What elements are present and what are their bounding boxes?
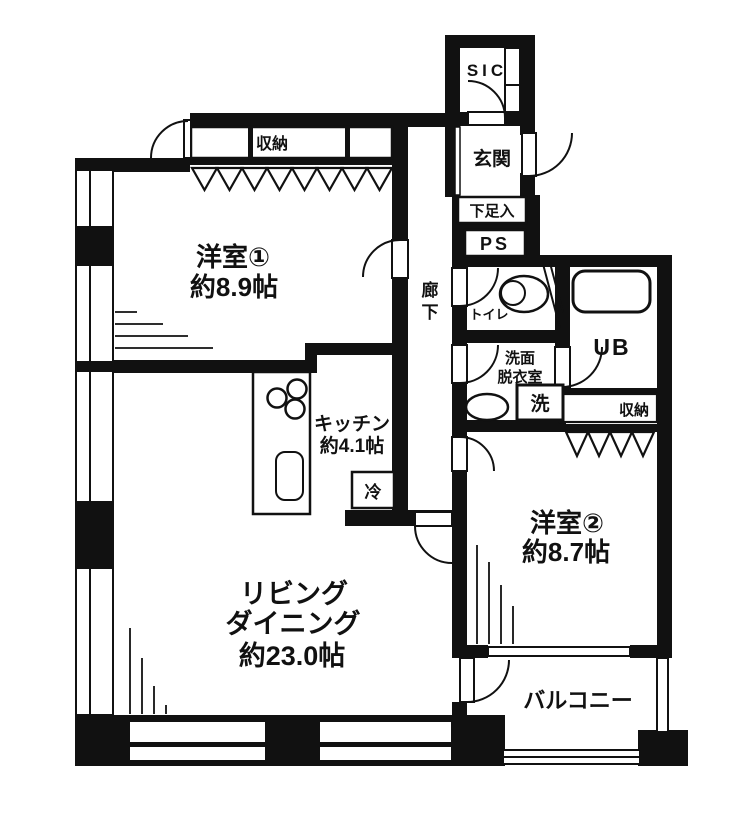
folding-door-icon (192, 168, 392, 190)
label-bedroom2-size: 約8.7帖 (522, 537, 610, 567)
door-sic (468, 81, 505, 125)
label-living-size: 約23.0帖 (239, 640, 346, 671)
label-kitchen-name: キッチン (314, 414, 390, 435)
label-refrigerator: 冷 (365, 482, 382, 502)
label-balcony: バルコニー (523, 688, 633, 713)
sic-shelf (505, 48, 520, 112)
toilet-icon (500, 263, 563, 328)
label-sic: SIC (467, 61, 507, 80)
kitchen-counter-icon (253, 372, 310, 514)
label-living-2: ダイニング (226, 608, 361, 639)
washbasin-icon (466, 394, 508, 420)
door-living (415, 512, 452, 563)
label-hallway-1: 廊 (422, 280, 439, 300)
label-shoe-cabinet: 下足入 (469, 203, 514, 220)
label-toilet: トイレ (469, 307, 508, 322)
floor-plan-drawing: SIC 玄関 下足入 PS トイレ UB 洗面 脱衣室 洗 収納 収納 廊 下 … (0, 0, 750, 825)
door-entrance (522, 133, 572, 176)
label-living-1: リビング (240, 578, 348, 609)
label-washroom-2: 脱衣室 (497, 368, 542, 386)
door-bedroom1 (363, 240, 408, 278)
label-bedroom1-size: 約8.9帖 (190, 272, 278, 302)
label-kitchen-size: 約4.1帖 (320, 434, 384, 457)
floor-plan-page: SIC 玄関 下足入 PS トイレ UB 洗面 脱衣室 洗 収納 収納 廊 下 … (0, 0, 750, 825)
folding-door-icon (566, 432, 654, 456)
label-laundry: 洗 (530, 392, 549, 415)
label-hallway-2: 下 (422, 303, 439, 322)
bathtub-icon (573, 271, 650, 312)
label-closet1: 収納 (256, 134, 288, 153)
door-washroom (452, 345, 498, 383)
label-bedroom1-name: 洋室① (196, 242, 270, 272)
label-bedroom2-name: 洋室② (530, 508, 604, 538)
label-washroom-1: 洗面 (505, 349, 535, 367)
label-bath: UB (593, 334, 630, 360)
door-toilet (452, 268, 498, 306)
door-bedroom2 (452, 437, 494, 471)
label-closet2: 収納 (619, 401, 649, 419)
door-balcony (460, 658, 509, 702)
label-entrance: 玄関 (473, 147, 511, 170)
closet-bedroom1 (191, 127, 392, 190)
door-exterior-north (151, 120, 191, 158)
label-pipe-space: PS (480, 234, 510, 254)
